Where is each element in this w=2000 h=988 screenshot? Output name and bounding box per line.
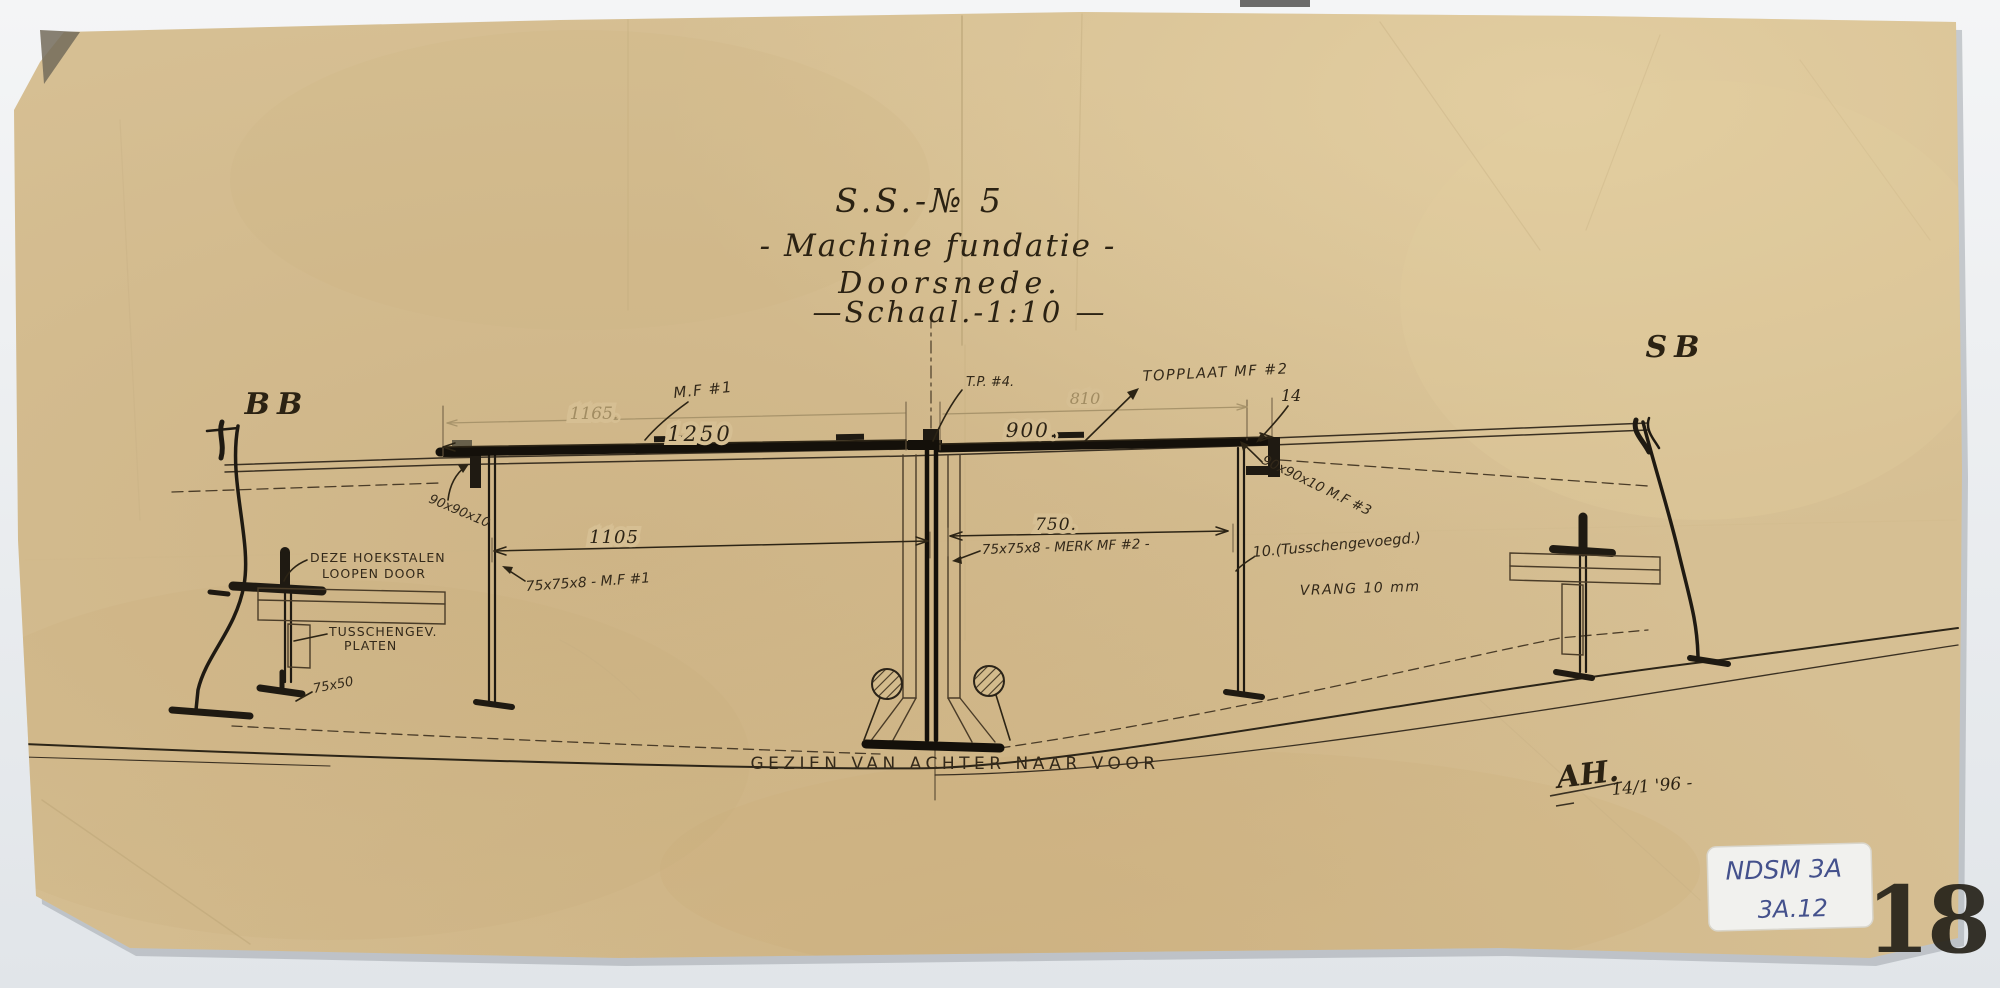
sticker-line-2: 3A.12 [1757, 894, 1828, 924]
dim-1250: 1250 [667, 422, 732, 446]
title-line-1: S.S.-№ 5 [835, 181, 1005, 220]
dim-14: 14 [1281, 386, 1301, 405]
dim-810: 810 [1070, 389, 1101, 408]
label-hoekstalen-2: LOOPEN DOOR [322, 566, 426, 581]
archive-stamp-number: 18 [1866, 866, 1988, 974]
lightening-hole-left [872, 669, 902, 699]
label-tusschengev-1: TUSSCHENGEV. [328, 624, 438, 639]
label-hoekstalen-1: DEZE HOEKSTALEN [310, 550, 446, 565]
scan-edge-mark [1240, 0, 1310, 7]
label-tusschengev-2: PLATEN [344, 638, 397, 653]
side-label-bb: BB [244, 387, 310, 422]
archive-sticker: NDSM 3A 3A.12 [1707, 843, 1873, 931]
label-tp4: T.P. #4. [966, 375, 1014, 390]
drawing-canvas: S.S.-№ 5 - Machine fundatie - Doorsnede.… [0, 0, 2000, 988]
sticker-line-1: NDSM 3A [1725, 854, 1842, 886]
side-label-sb: SB [1645, 330, 1706, 365]
title-line-4: —Schaal.-1:10 — [813, 295, 1108, 329]
lightening-hole-right [974, 666, 1004, 696]
dim-1105: 1105 [589, 527, 639, 548]
title-line-2: - Machine fundatie - [760, 228, 1117, 264]
paper-texture [0, 0, 2000, 988]
dim-900: 900. [1006, 418, 1059, 442]
scanned-drawing-photo: S.S.-№ 5 - Machine fundatie - Doorsnede.… [0, 0, 2000, 988]
dim-750: 750. [1035, 515, 1077, 535]
caption-view-note: GEZIEN VAN ACHTER NAAR VOOR [750, 754, 1159, 774]
dim-1165: 1165. [570, 404, 619, 424]
